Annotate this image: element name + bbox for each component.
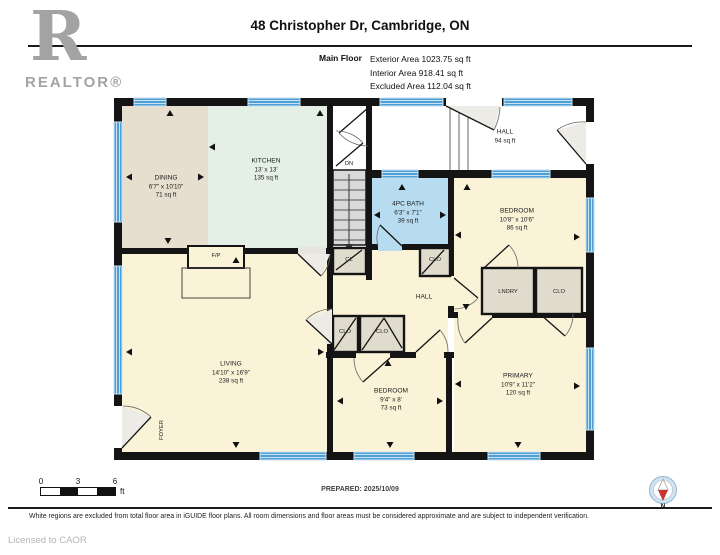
room-label-hall-center: HALL: [416, 294, 433, 303]
room-label-closet-b: CLO: [376, 329, 388, 337]
stairs-down-label: DN: [345, 161, 353, 169]
room-name: FOYER: [159, 420, 167, 440]
room-label-bedroom-bottom: BEDROOM 9'4" x 8' 73 sq ft: [374, 388, 408, 413]
room-label-foyer: FOYER: [159, 420, 167, 440]
room-name: HALL: [416, 294, 433, 303]
room-label-closet-small: CL: [345, 257, 352, 265]
room-label-bedroom-right: BEDROOM 10'8" x 10'6" 86 sq ft: [500, 208, 535, 233]
room-name: CLO: [376, 329, 388, 337]
room-name: DN: [345, 161, 353, 169]
footer-rule: [8, 507, 712, 509]
room-area: 71 sq ft: [149, 191, 184, 199]
room-dims: 9'4" x 8': [374, 396, 408, 404]
room-dims: 10'8" x 10'6": [500, 216, 535, 224]
room-area: 120 sq ft: [501, 389, 535, 397]
room-name: DINING: [149, 175, 184, 184]
room-label-dining: DINING 6'7" x 10'10" 71 sq ft: [149, 175, 184, 200]
room-area: 135 sq ft: [252, 174, 281, 182]
scale-tick: 0: [39, 477, 43, 486]
room-name: CLO: [339, 329, 351, 337]
room-dims: 10'9" x 11'2": [501, 381, 535, 389]
license-text: Licensed to CAOR: [8, 535, 87, 546]
stairs-down: [333, 170, 366, 253]
room-area: 73 sq ft: [374, 404, 408, 412]
room-label-bath: 4PC BATH 6'3" x 7'1" 39 sq ft: [392, 201, 424, 226]
room-dims: 6'3" x 7'1": [392, 209, 424, 217]
prepared-date: PREPARED: 2025/10/09: [0, 486, 720, 493]
room-name: BEDROOM: [500, 208, 535, 217]
scale-tick: 3: [76, 477, 80, 486]
room-label-primary: PRIMARY 10'9" x 11'2" 120 sq ft: [501, 373, 535, 398]
room-name: KITCHEN: [252, 158, 281, 167]
room-area: 94 sq ft: [495, 137, 516, 145]
scale-bar-ticks: 0 3 6: [40, 477, 150, 486]
floor-plan-drawing: [0, 0, 720, 555]
room-name: F/P: [211, 253, 220, 261]
room-dims: 14'10" x 16'9": [212, 369, 250, 377]
scale-tick: 6: [113, 477, 117, 486]
room-label-kitchen: KITCHEN 13' x 13' 135 sq ft: [252, 158, 281, 183]
room-dims: 6'7" x 10'10": [149, 183, 184, 191]
room-area: 39 sq ft: [392, 217, 424, 225]
fireplace-label: F/P: [211, 253, 220, 261]
room-label-closet-top: CLO: [429, 257, 441, 265]
room-name: CLO: [429, 257, 441, 265]
room-name: PRIMARY: [501, 373, 535, 382]
room-name: CLO: [553, 289, 565, 297]
room-label-living: LIVING 14'10" x 16'9" 238 sq ft: [212, 361, 250, 386]
floor-plan-page: { "header": { "title": "48 Christopher D…: [0, 0, 720, 555]
room-label-hall-upper: HALL 94 sq ft: [495, 129, 516, 146]
room-area: 238 sq ft: [212, 377, 250, 385]
room-name: BEDROOM: [374, 388, 408, 397]
room-name: LNDRY: [498, 289, 518, 297]
room-label-closet-a: CLO: [339, 329, 351, 337]
room-name: CL: [345, 257, 352, 265]
room-name: 4PC BATH: [392, 201, 424, 210]
room-name: LIVING: [212, 361, 250, 370]
disclaimer-text: White regions are excluded from total fl…: [29, 513, 689, 520]
room-label-closet-right: CLO: [553, 289, 565, 297]
room-name: HALL: [495, 129, 516, 138]
room-label-laundry: LNDRY: [498, 289, 518, 297]
room-dims: 13' x 13': [252, 166, 281, 174]
room-area: 86 sq ft: [500, 224, 535, 232]
